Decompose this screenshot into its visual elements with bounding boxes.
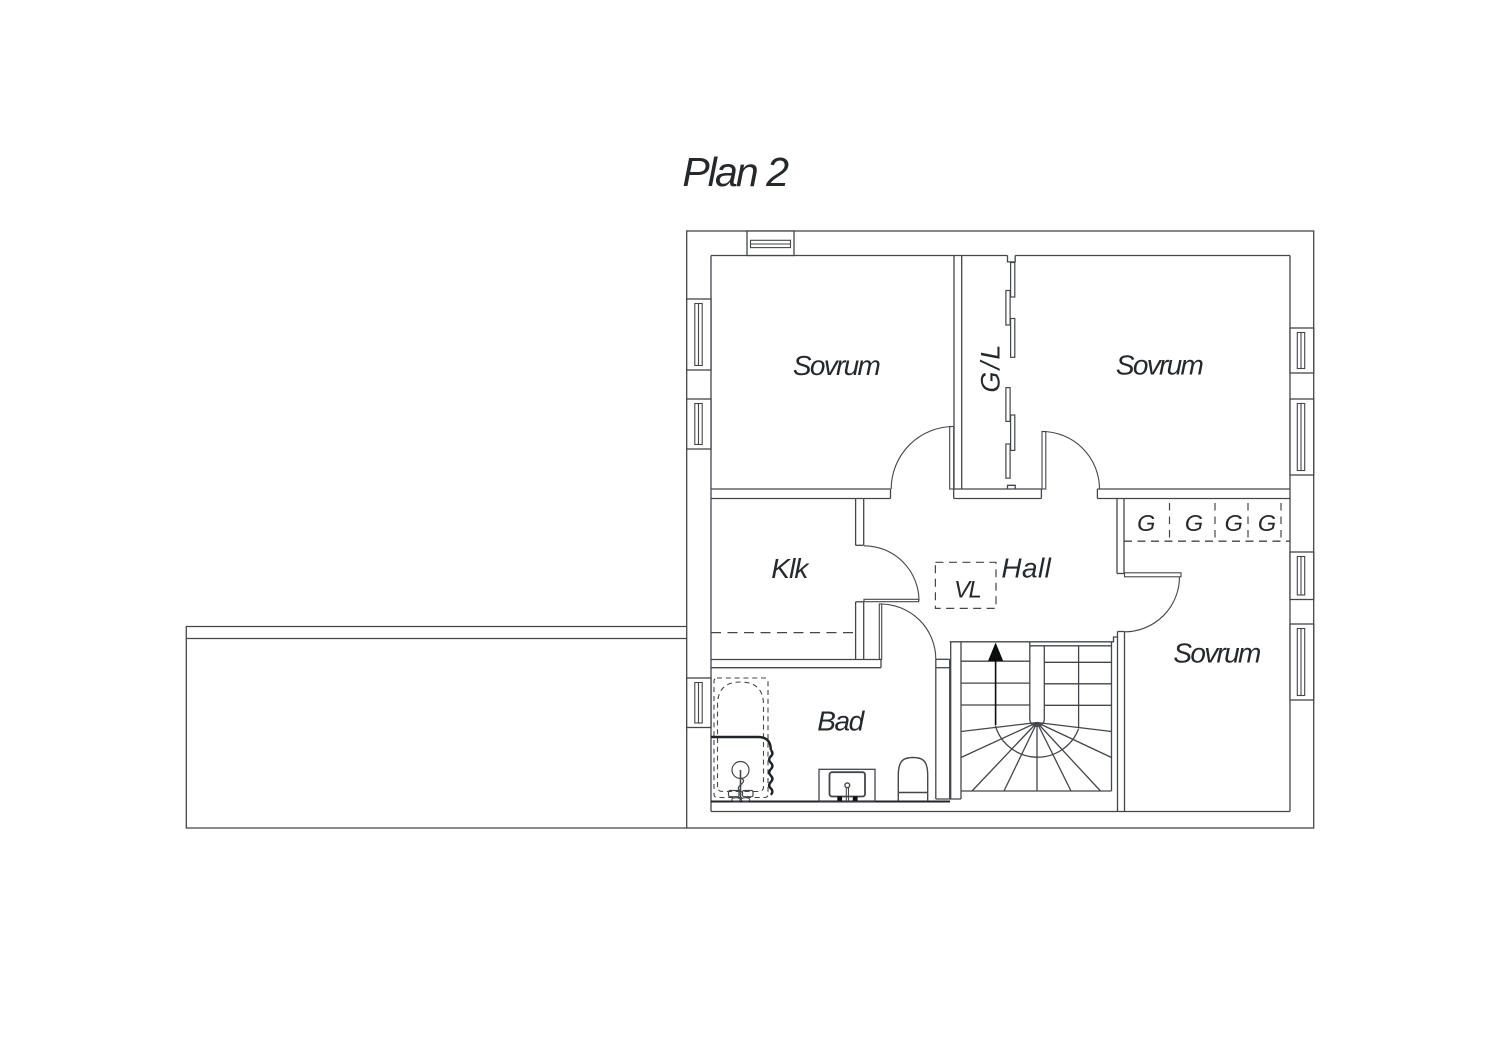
svg-text:Hall: Hall: [1001, 553, 1051, 584]
svg-text:Plan 2: Plan 2: [682, 149, 789, 195]
svg-text:G: G: [1258, 510, 1276, 536]
svg-text:VL: VL: [954, 577, 981, 604]
svg-text:Sovrum: Sovrum: [1173, 638, 1261, 669]
svg-text:G/L: G/L: [976, 342, 1006, 392]
svg-text:Sovrum: Sovrum: [793, 350, 881, 381]
svg-text:G: G: [1185, 510, 1203, 536]
svg-text:G: G: [1225, 510, 1243, 536]
svg-text:G: G: [1137, 510, 1155, 536]
svg-text:Sovrum: Sovrum: [1116, 350, 1204, 381]
svg-text:Klk: Klk: [771, 553, 810, 584]
svg-text:Bad: Bad: [817, 705, 865, 736]
